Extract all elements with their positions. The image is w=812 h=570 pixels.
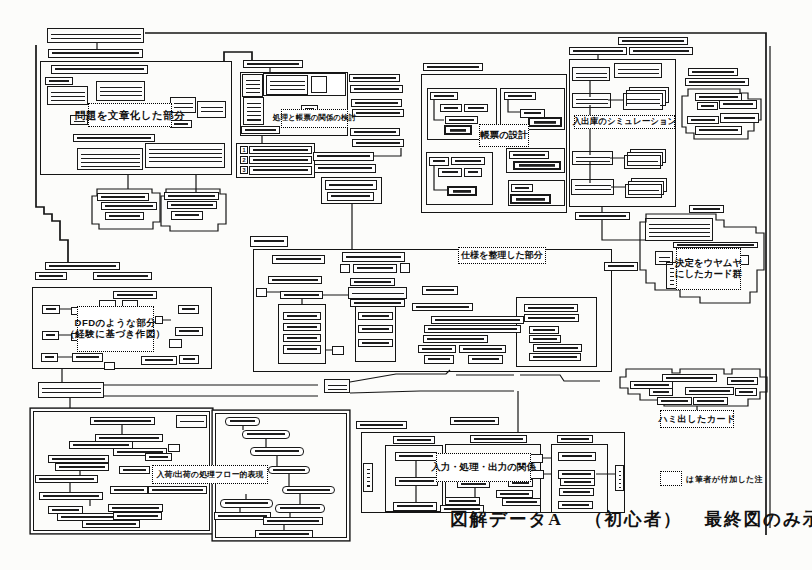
label-overflow-cards-text: ハミ出したカード	[658, 414, 735, 424]
card-box	[533, 344, 582, 352]
card-box	[327, 192, 374, 201]
card-box	[350, 128, 400, 136]
card-box	[170, 120, 192, 128]
card-box	[141, 356, 177, 365]
card-box	[145, 143, 225, 168]
card-box	[697, 102, 718, 110]
card-box	[451, 157, 485, 165]
label-flow-text: 入荷/出荷の処理フロー的表現	[157, 470, 264, 479]
card-box	[429, 157, 449, 166]
card-box	[47, 86, 88, 105]
card-box	[148, 486, 207, 494]
card-box	[241, 126, 280, 134]
label-dfd-line2: （経験に基づき作図）	[65, 329, 166, 340]
label-vague-cards-line2: にしたカード群	[675, 269, 743, 280]
card-box	[263, 517, 323, 525]
card-box	[73, 134, 155, 142]
card-box	[685, 78, 749, 86]
legend-dotted-box-icon	[660, 471, 682, 486]
card-box	[468, 355, 503, 364]
card-box	[72, 353, 103, 362]
card-box	[618, 37, 688, 45]
card-box	[363, 463, 373, 492]
card-box	[688, 68, 738, 76]
card-box	[256, 288, 267, 297]
card-box	[418, 345, 456, 353]
card-box	[275, 504, 325, 513]
card-box	[242, 430, 290, 439]
card-box	[96, 81, 145, 101]
card-box	[727, 377, 758, 385]
card-box	[82, 520, 140, 528]
card-box	[529, 335, 561, 343]
card-box	[464, 168, 482, 177]
card-box	[393, 502, 437, 511]
label-spec-section: 仕様を整理した部分	[458, 247, 546, 264]
card-box	[572, 151, 613, 165]
card-box	[348, 287, 407, 299]
card-box	[529, 353, 581, 361]
card-box	[164, 192, 219, 200]
card-box	[282, 486, 335, 494]
card-box	[352, 139, 404, 147]
card-box	[220, 499, 273, 508]
card-box	[614, 63, 662, 78]
card-box	[249, 146, 312, 154]
card-box	[283, 345, 321, 354]
label-problem-text: 問題を文章化した部分	[75, 109, 186, 121]
card-box	[559, 488, 594, 496]
label-vague-cards-section: 決定をウヤムヤにしたカード群	[676, 248, 741, 290]
card-box	[350, 278, 395, 286]
caption-title: 図解データA	[450, 507, 563, 531]
card-box	[352, 109, 404, 117]
card-box	[529, 326, 559, 334]
card-box	[353, 264, 397, 273]
card-box	[97, 193, 149, 201]
card-box	[719, 100, 757, 109]
card-box	[243, 97, 264, 125]
card-box	[511, 184, 533, 192]
card-box	[687, 116, 719, 124]
card-box	[47, 28, 144, 43]
card-box	[445, 497, 480, 505]
list-number-1: 1	[240, 146, 248, 154]
card-box	[332, 346, 344, 355]
card-box	[509, 151, 549, 159]
card-box	[645, 218, 713, 241]
card-box	[424, 325, 521, 333]
card-box	[423, 335, 488, 343]
card-box	[693, 397, 728, 405]
label-dfd-section: DFDのような部分（経験に基づき作図）	[77, 306, 154, 352]
card-box	[249, 156, 312, 164]
card-box	[445, 116, 478, 124]
card-box	[444, 125, 472, 135]
card-box	[90, 417, 155, 425]
card-box	[283, 334, 321, 342]
card-box	[104, 362, 115, 370]
card-box	[624, 155, 661, 169]
card-box	[268, 466, 310, 474]
card-box	[225, 417, 260, 426]
card-box	[93, 272, 152, 280]
card-box	[145, 453, 172, 461]
card-box	[528, 117, 562, 127]
card-box	[101, 202, 157, 210]
card-box	[48, 49, 143, 58]
card-box	[351, 99, 402, 107]
card-box	[524, 304, 578, 312]
card-box	[48, 455, 109, 463]
card-box	[623, 93, 663, 110]
label-problem-section: 問題を文章化した部分	[88, 103, 172, 127]
card-box	[324, 379, 350, 393]
card-box	[313, 152, 374, 161]
label-warehouse-sim-text: 入出庫のシミュレーション	[573, 117, 677, 127]
legend-note: は筆者が付加した注	[686, 474, 763, 485]
card-box	[113, 291, 157, 299]
card-box	[412, 303, 473, 311]
label-flow-section: 入荷/出荷の処理フロー的表現	[152, 465, 268, 484]
card-box	[629, 47, 693, 55]
card-box	[572, 67, 610, 81]
label-overflow-cards-section: ハミ出したカード	[660, 410, 734, 428]
card-box	[395, 477, 438, 486]
label-report-design-section: 帳票の設計	[479, 124, 529, 147]
card-box	[266, 75, 308, 95]
card-box	[41, 353, 58, 362]
card-box	[197, 101, 226, 118]
card-box	[342, 252, 405, 262]
card-box	[358, 339, 393, 347]
card-box	[447, 186, 477, 196]
card-box	[77, 148, 143, 170]
card-box	[459, 345, 506, 353]
card-box	[272, 255, 325, 264]
card-box	[695, 126, 742, 135]
card-box	[400, 263, 410, 273]
figure-caption: 図解データA （初心者） 最終図のみ示す	[450, 507, 812, 531]
card-box	[558, 452, 596, 461]
card-box	[350, 299, 405, 307]
card-box	[255, 530, 313, 538]
card-box	[340, 264, 350, 273]
card-box	[35, 475, 98, 483]
card-box	[55, 463, 109, 471]
label-spec-text: 仕様を整理した部分	[461, 250, 543, 260]
scanned-diagram-canvas: 1 2 3 問題を文章化した部分 処理と帳票の関係の検討 帳票の設計 入出庫のシ…	[0, 0, 812, 570]
card-box	[113, 512, 162, 520]
card-box	[510, 194, 551, 204]
card-box	[358, 325, 393, 333]
card-box	[168, 444, 180, 452]
card-box	[571, 179, 614, 195]
card-box	[689, 205, 724, 213]
card-box	[393, 436, 435, 444]
card-box	[470, 435, 527, 443]
card-box	[175, 327, 203, 336]
card-box	[268, 276, 322, 284]
card-box	[450, 417, 499, 425]
list-number-3: 3	[240, 166, 248, 174]
caption-subject: （初心者）	[585, 507, 683, 531]
card-box	[569, 47, 627, 55]
label-process-report-section: 処理と帳票の関係の検討	[281, 109, 348, 128]
card-box	[502, 498, 541, 506]
card-box	[496, 490, 533, 498]
card-box	[249, 166, 312, 175]
label-report-design-text: 帳票の設計	[480, 130, 528, 141]
card-box	[430, 92, 458, 100]
card-box	[171, 211, 203, 220]
card-box	[38, 382, 104, 398]
card-box	[356, 421, 407, 429]
card-box	[325, 180, 377, 190]
card-box	[250, 447, 304, 456]
card-box	[720, 113, 759, 123]
card-box	[311, 76, 327, 93]
card-box	[422, 286, 458, 295]
label-io-section: 入力・処理・出力の関係	[436, 453, 531, 482]
card-box	[45, 262, 120, 270]
card-box	[438, 168, 462, 177]
card-box	[615, 465, 624, 491]
card-box	[283, 312, 321, 320]
card-box	[657, 397, 692, 405]
card-box	[179, 355, 199, 364]
card-box	[178, 305, 199, 314]
card-box	[42, 305, 60, 314]
card-box	[283, 323, 321, 331]
label-io-text: 入力・処理・出力の関係	[431, 462, 536, 473]
card-box	[45, 77, 73, 85]
label-warehouse-sim-section: 入出庫のシミュレーション	[574, 115, 675, 129]
card-box	[431, 316, 524, 324]
card-box	[350, 85, 403, 93]
card-box	[314, 164, 376, 173]
card-box	[119, 466, 150, 474]
card-box	[604, 262, 638, 271]
card-box	[649, 388, 673, 396]
card-box	[395, 452, 437, 461]
label-process-report-text: 処理と帳票の関係の検討	[273, 114, 356, 123]
card-box	[735, 388, 757, 396]
card-box	[424, 355, 454, 364]
card-box	[280, 291, 323, 299]
caption-note: 最終図のみ示す	[704, 507, 812, 531]
card-box	[504, 92, 536, 100]
card-box	[513, 161, 561, 170]
card-box	[440, 104, 462, 112]
card-box	[242, 74, 263, 97]
card-box	[42, 331, 59, 340]
card-box	[243, 60, 303, 68]
card-box	[167, 201, 217, 209]
card-box	[423, 63, 483, 71]
card-box	[105, 212, 144, 220]
card-box	[39, 492, 103, 500]
card-box	[464, 104, 488, 112]
card-box	[560, 478, 595, 486]
card-box	[625, 184, 662, 198]
card-box	[524, 314, 579, 322]
list-number-2: 2	[240, 156, 248, 164]
card-box	[108, 504, 163, 512]
card-box	[358, 312, 393, 320]
card-box	[572, 93, 611, 108]
card-box	[685, 387, 734, 395]
card-box	[557, 435, 593, 443]
card-box	[51, 65, 148, 74]
card-box	[349, 74, 400, 82]
card-box	[250, 236, 288, 247]
card-box	[110, 486, 148, 494]
card-box	[575, 212, 630, 220]
card-box	[169, 339, 182, 348]
card-box	[35, 272, 67, 280]
card-box	[176, 415, 207, 428]
